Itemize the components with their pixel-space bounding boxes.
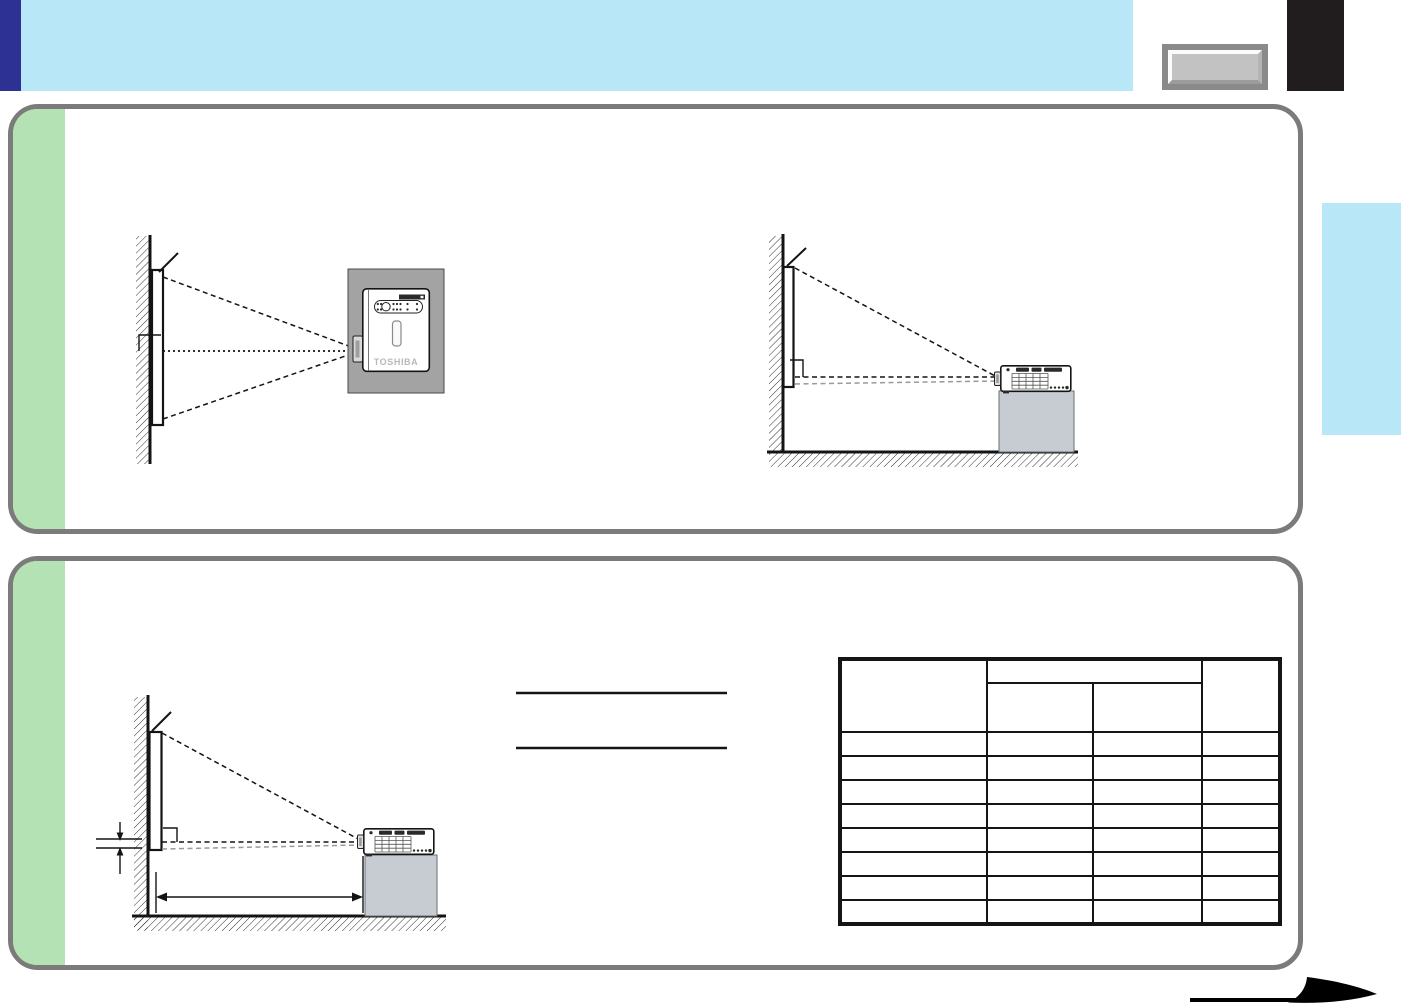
table-cell xyxy=(1202,732,1280,756)
table-subheader-min xyxy=(987,683,1093,732)
next-page-arrow-icon xyxy=(1190,977,1377,1003)
table-row xyxy=(840,828,1280,852)
projection-table-body xyxy=(840,732,1280,924)
table-cell xyxy=(840,876,987,900)
table-cell xyxy=(1093,732,1202,756)
table-cell xyxy=(1093,756,1202,780)
panel-green-strip xyxy=(13,561,65,965)
panel-green-strip xyxy=(13,109,65,529)
header-title-bar xyxy=(21,0,1133,91)
nav-button[interactable] xyxy=(1162,44,1268,90)
table-row xyxy=(840,756,1280,780)
table-cell xyxy=(987,804,1093,828)
table-cell xyxy=(840,780,987,804)
page-corner-tab xyxy=(1287,0,1344,91)
table-subheader-max xyxy=(1093,683,1202,732)
table-cell xyxy=(840,804,987,828)
table-row xyxy=(840,780,1280,804)
section-side-tab xyxy=(1322,203,1401,435)
table-row xyxy=(840,732,1280,756)
table-cell xyxy=(987,780,1093,804)
table-cell xyxy=(1093,876,1202,900)
table-cell xyxy=(1202,804,1280,828)
nav-button-face xyxy=(1168,50,1262,84)
table-cell xyxy=(1093,900,1202,924)
table-cell xyxy=(840,852,987,876)
table-cell xyxy=(1093,828,1202,852)
table-cell xyxy=(840,900,987,924)
table-row xyxy=(840,876,1280,900)
panel-placement-diagrams xyxy=(8,104,1303,534)
manual-page: TOSHIBA xyxy=(0,0,1401,1004)
table-cell xyxy=(840,828,987,852)
table-cell xyxy=(1202,828,1280,852)
table-cell xyxy=(1093,804,1202,828)
table-cell xyxy=(987,852,1093,876)
table-cell xyxy=(1202,900,1280,924)
table-header-right xyxy=(1202,659,1280,732)
projection-table-header xyxy=(840,659,1280,732)
table-cell xyxy=(987,732,1093,756)
table-cell xyxy=(1093,780,1202,804)
projection-distance-table xyxy=(838,657,1282,926)
table-cell xyxy=(1202,876,1280,900)
table-row xyxy=(840,804,1280,828)
table-cell xyxy=(987,756,1093,780)
table-cell xyxy=(987,828,1093,852)
header-accent-bar xyxy=(0,0,21,91)
table-cell xyxy=(1202,756,1280,780)
table-cell xyxy=(840,756,987,780)
table-cell xyxy=(987,900,1093,924)
table-row xyxy=(840,852,1280,876)
table-cell xyxy=(1202,780,1280,804)
table-header-screen-size xyxy=(840,659,987,732)
table-cell xyxy=(987,876,1093,900)
table-header-merged xyxy=(987,659,1202,683)
table-row xyxy=(840,900,1280,924)
table-cell xyxy=(840,732,987,756)
table-cell xyxy=(1202,852,1280,876)
table-cell xyxy=(1093,852,1202,876)
projection-table xyxy=(838,657,1282,926)
